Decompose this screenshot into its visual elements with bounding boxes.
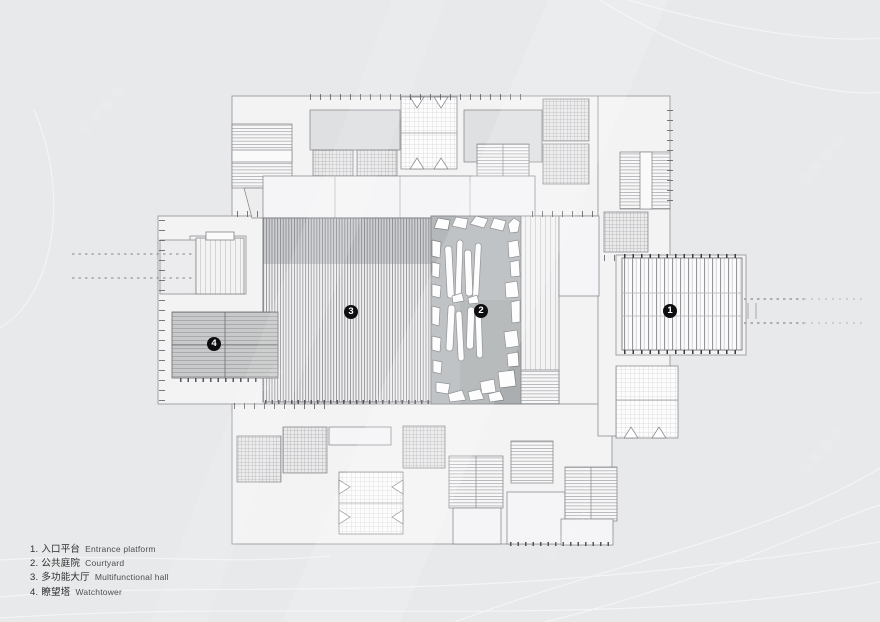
marker-watchtower: 4: [207, 337, 221, 351]
legend-label-zh: 入口平台: [41, 544, 80, 555]
hip-roof-pavilion: [616, 366, 678, 438]
site-plan-page: 知末案例 知末案例 知末案例 知末案例 知末案例 1 2 3 4 1.入口平台E…: [0, 0, 880, 622]
site-plan-drawing: [0, 0, 880, 622]
legend-label-zh: 多功能大厅: [41, 572, 90, 583]
pavilion-roof: [604, 212, 648, 252]
room: [453, 508, 501, 544]
west-gate-tower: [196, 232, 244, 294]
hip-roof-pavilion: [401, 97, 457, 169]
legend-item-multifunctional-hall: 3.多功能大厅Multifunctional hall: [30, 570, 169, 584]
legend-number: 4.: [30, 587, 38, 598]
legend-label-en: Entrance platform: [85, 544, 156, 554]
bridge-east: [744, 299, 862, 323]
legend-label-en: Watchtower: [75, 587, 122, 597]
legend-item-watchtower: 4.瞭望塔Watchtower: [30, 585, 169, 599]
legend: 1.入口平台Entrance platform 2.公共庭院Courtyard …: [30, 542, 169, 599]
legend-label-en: Multifunctional hall: [95, 572, 169, 582]
legend-label-en: Courtyard: [85, 558, 124, 568]
legend-label-zh: 公共庭院: [41, 558, 80, 569]
legend-number: 1.: [30, 544, 38, 555]
ridge-roof-pavilion: [511, 441, 553, 483]
legend-item-courtyard: 2.公共庭院Courtyard: [30, 556, 169, 570]
legend-item-entrance-platform: 1.入口平台Entrance platform: [30, 542, 169, 556]
legend-number: 2.: [30, 558, 38, 569]
entrance-platform-area: [622, 256, 742, 352]
legend-label-zh: 瞭望塔: [41, 587, 70, 598]
marker-entrance-platform: 1: [663, 304, 677, 318]
legend-number: 3.: [30, 572, 38, 583]
pavilion-roof: [283, 427, 327, 473]
marker-courtyard: 2: [474, 304, 488, 318]
ridge-roof-pavilion: [620, 152, 670, 209]
marker-multifunctional-hall: 3: [344, 305, 358, 319]
